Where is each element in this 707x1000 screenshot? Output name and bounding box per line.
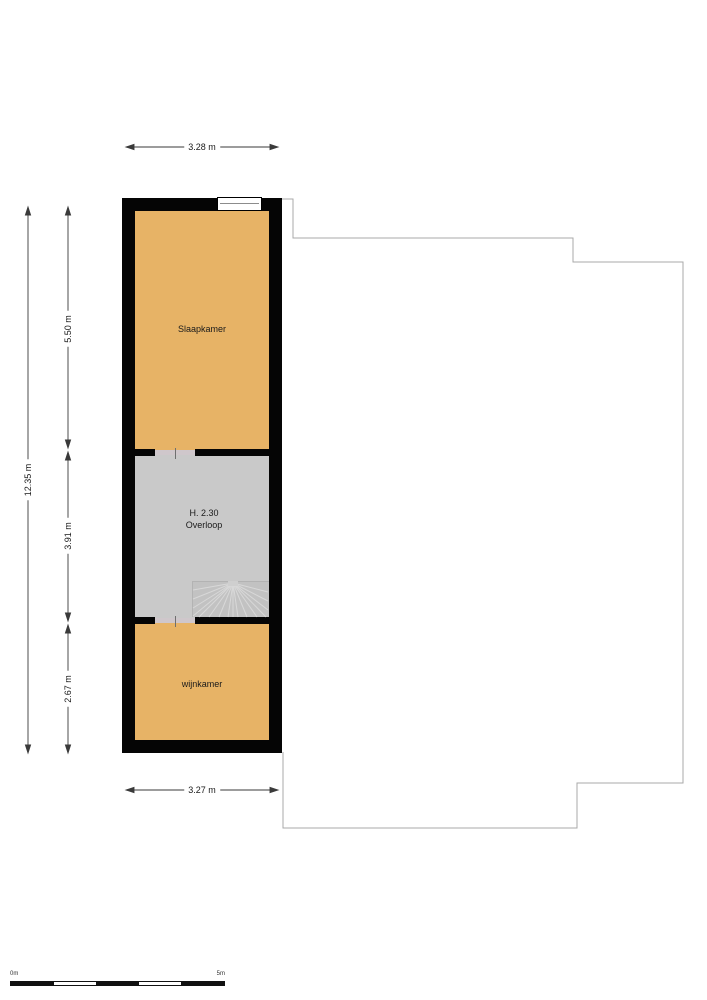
scale-bar-segment	[11, 982, 54, 985]
door-swing-tick	[175, 448, 176, 459]
scale-bar-segment	[54, 982, 97, 985]
window-pane-line	[220, 203, 259, 204]
floorplan-canvas: 3.28 m 3.27 m 12.35 m 5.50 m 3.91 m 2.67…	[0, 0, 707, 1000]
room-slaapkamer-label: Slaapkamer	[178, 324, 226, 334]
building-outline	[282, 199, 683, 828]
dimension-overloop-height-label: 3.91 m	[63, 518, 73, 554]
scale-bar-segment	[181, 982, 224, 985]
scale-bar	[10, 981, 225, 986]
scale-bar-segment	[96, 982, 139, 985]
dimension-total-height-label: 12.35 m	[23, 460, 33, 501]
room-overloop-label: Overloop	[186, 519, 223, 531]
door-slaapkamer	[155, 449, 195, 456]
room-wijnkamer-label: wijnkamer	[182, 679, 223, 689]
scale-bar-end-label: 5m	[217, 971, 225, 977]
door-swing-tick	[175, 616, 176, 627]
stairs	[192, 581, 269, 617]
room-overloop-height-label: H. 2.30	[186, 507, 223, 519]
door-wijnkamer	[155, 617, 195, 624]
room-overloop-label-block: H. 2.30 Overloop	[186, 507, 223, 531]
window	[217, 197, 262, 211]
linework-layer	[0, 0, 707, 1000]
scale-bar-segment	[139, 982, 182, 985]
dimension-slaapkamer-height-label: 5.50 m	[63, 311, 73, 347]
scale-bar-start-label: 0m	[10, 971, 18, 977]
dimension-bottom-label: 3.27 m	[184, 785, 220, 795]
dimension-wijnkamer-height-label: 2.67 m	[63, 671, 73, 707]
dimension-top-label: 3.28 m	[184, 142, 220, 152]
